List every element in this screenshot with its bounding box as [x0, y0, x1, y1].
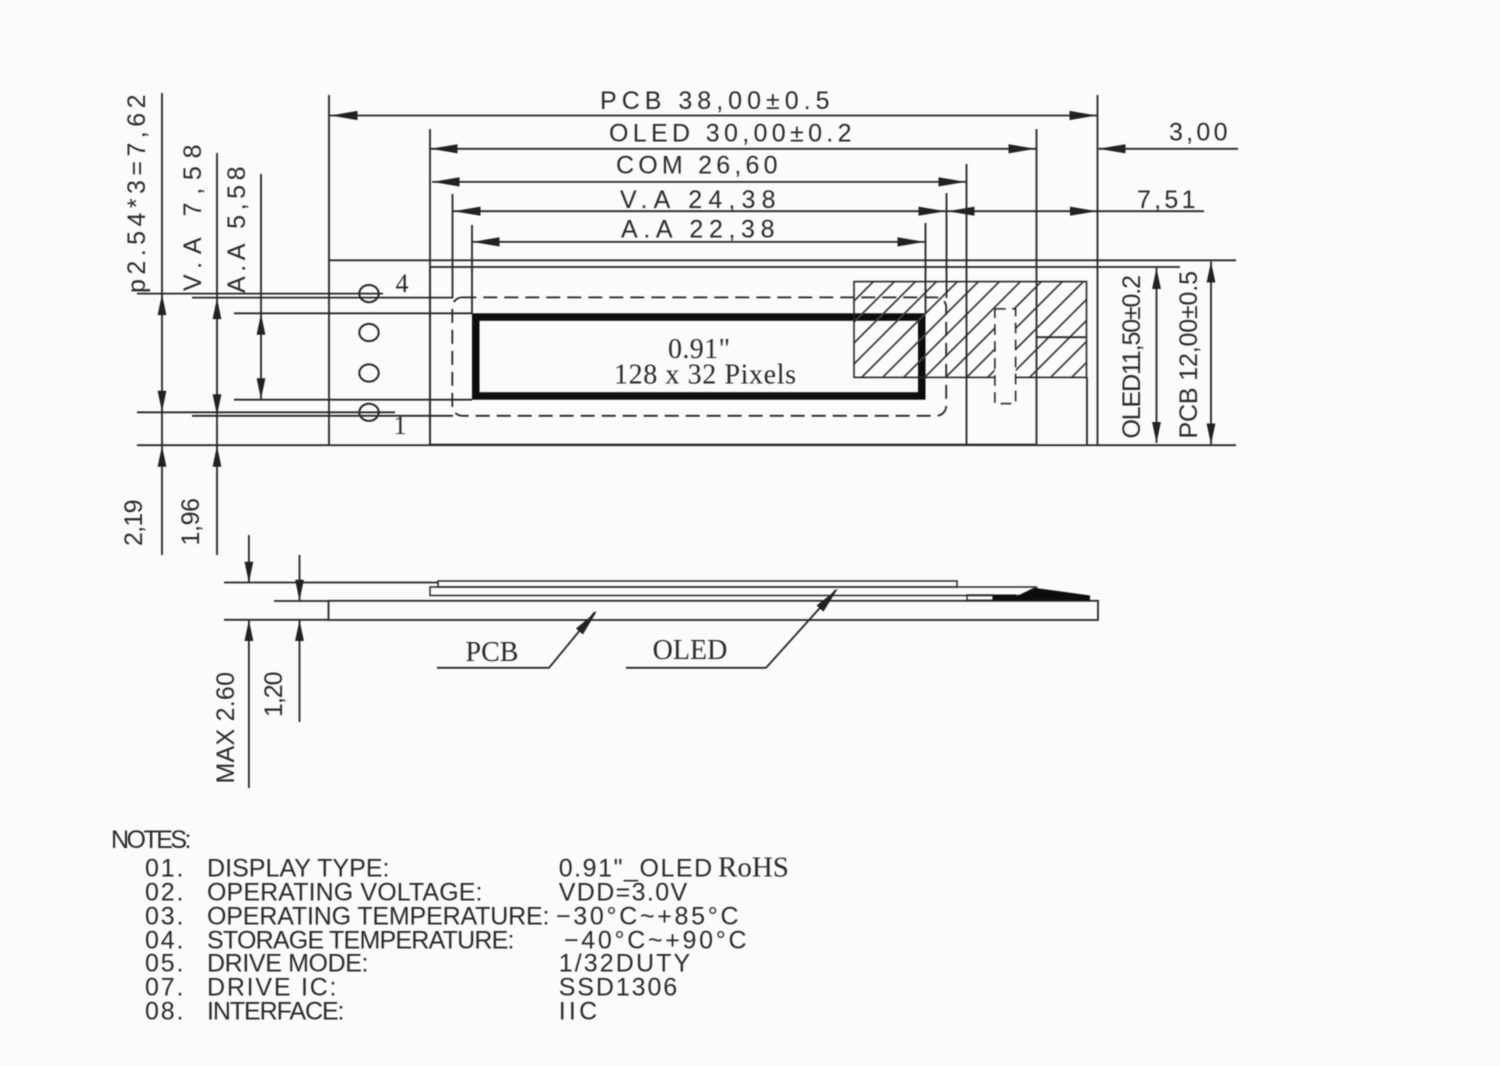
- svg-text:IIC: IIC: [559, 998, 599, 1026]
- svg-text:NOTES:: NOTES:: [111, 826, 193, 854]
- svg-text:MAX 2.60: MAX 2.60: [212, 671, 240, 784]
- svg-text:COM 26,60: COM 26,60: [616, 152, 779, 180]
- svg-text:1,96: 1,96: [177, 497, 205, 546]
- svg-text:1,20: 1,20: [260, 670, 288, 717]
- svg-text:08.: 08.: [145, 998, 185, 1026]
- svg-text:PCB 38,00±0.5: PCB 38,00±0.5: [600, 87, 831, 115]
- svg-text:2,19: 2,19: [120, 498, 148, 546]
- svg-text:PCB 12,00±0.5: PCB 12,00±0.5: [1175, 270, 1203, 439]
- svg-text:OLED: OLED: [653, 635, 728, 666]
- svg-text:3,00: 3,00: [1169, 119, 1229, 147]
- svg-text:OLED 30,00±0.2: OLED 30,00±0.2: [609, 120, 853, 148]
- svg-text:1: 1: [394, 411, 407, 440]
- svg-text:p2.54*3=7,62: p2.54*3=7,62: [123, 93, 151, 293]
- svg-text:PCB: PCB: [466, 637, 519, 668]
- svg-text:RoHS: RoHS: [718, 852, 789, 884]
- svg-text:INTERFACE:: INTERFACE:: [207, 998, 346, 1026]
- svg-text:V.A 24,38: V.A 24,38: [620, 186, 777, 214]
- svg-text:128 x 32 Pixels: 128 x 32 Pixels: [614, 360, 796, 391]
- svg-text:A.A 5,58: A.A 5,58: [223, 165, 251, 293]
- svg-text:4: 4: [396, 269, 409, 298]
- svg-text:V.A 7,58: V.A 7,58: [179, 143, 207, 291]
- svg-text:7,51: 7,51: [1137, 186, 1197, 214]
- svg-text:A.A 22,38: A.A 22,38: [621, 216, 776, 244]
- svg-text:OLED11,50±0.2: OLED11,50±0.2: [1118, 274, 1146, 439]
